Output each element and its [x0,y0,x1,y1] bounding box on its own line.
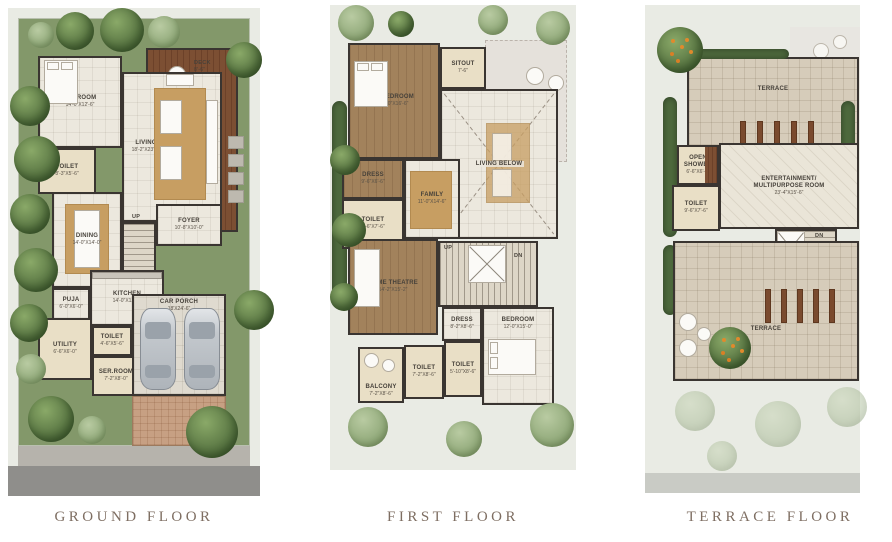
room-entertainment: ENTERTAINMENT/ MULTIPURPOSE ROOM 23'-4"X… [719,143,859,229]
pillow [357,63,369,71]
tree [148,16,180,48]
room-label: ENTERTAINMENT/ MULTIPURPOSE ROOM [739,176,839,190]
tree [14,136,60,182]
room-toilet-tf: TOILET 9'-6"X7'-6" [672,185,720,231]
sofa [160,100,182,134]
room-dress-2: DRESS 8'-2"X8'-6" [442,307,482,341]
room-label: TOILET [413,365,435,372]
tree [28,22,54,48]
tree [10,304,48,342]
sofa [492,133,512,161]
tree [827,387,867,427]
room-label: CAR PORCH [160,299,198,306]
room-label: DINING [76,233,98,240]
tree [707,441,737,471]
car [140,308,176,390]
fruit-tree [657,27,703,73]
room-dims: 10'-8"X10'-0" [175,226,204,232]
stepping-stone [228,190,244,203]
room-label: UTILITY [53,342,77,349]
tree [338,5,374,41]
room-label: SER.ROOM [99,369,133,376]
tree [100,8,144,52]
room-label: TOILET [452,362,474,369]
room-dims: 14'-0"X14'-0" [73,241,102,247]
tree [330,145,360,175]
pillow [371,63,383,71]
stepping-stone [228,136,244,149]
room-toilet-gf-2: TOILET 4'-6"X5'-6" [92,326,132,356]
road-ghost [645,473,860,493]
ground-floor-title: GROUND FLOOR [8,509,260,526]
room-label: FOYER [178,218,200,225]
tree [78,416,106,444]
room-toilet-ff-3: TOILET 5'-10"X8'-6" [444,341,482,397]
tree [10,86,50,126]
stairs-dn-label: DN [815,233,824,239]
room-dims: 4'-6"X5'-6" [100,342,123,348]
hedge [689,49,789,59]
stepping-stone [228,154,244,167]
room-label: TOILET [101,334,123,341]
deck-chair-ghost [833,35,847,49]
room-dims: 5'-10"X8'-6" [450,370,476,376]
stair-void-cross [469,246,505,282]
lounge-table [697,327,711,341]
staircase-gf [122,222,156,274]
room-dims: 7'-6" [458,69,468,75]
stair-void [468,245,506,283]
deck-dims: 8'-6" [194,67,205,73]
room-dims: 12'-0"X15'-0" [504,325,533,331]
room-label: BALCONY [365,384,396,391]
room-dims: 7'-2"X8'-6" [369,392,392,398]
room-label: DRESS [362,172,384,179]
sofa-seat [206,100,218,184]
deck-label: DECK [194,60,211,66]
deck-chair [526,67,544,85]
first-floor-title: FIRST FLOOR [330,509,576,526]
pergola-beam [781,289,787,323]
terrace-label: TERRACE [751,326,781,333]
pillow [490,357,498,369]
room-label: SITOUT [451,61,474,68]
living-below-label: LIVING BELOW [474,161,524,168]
terrace-top: TERRACE [687,57,859,147]
room-dims: 11'-0"X14'-6" [418,200,446,206]
room-puja: PUJA 6'-0"X6'-0" [52,288,90,320]
room-dims: 6'-6"X6'-0" [53,350,76,356]
pergola-beam [829,289,835,323]
room-dims: 7'-2"X8'-0" [104,377,127,383]
room-dims: 14'-0"X12'-6" [66,103,95,109]
tree [536,11,570,45]
pergola-beam [813,289,819,323]
room-label: TOILET [56,164,78,171]
tree [388,11,414,37]
pergola-beam [765,289,771,323]
tree [755,401,801,447]
room-dims: 6'-0"X6'-0" [59,305,82,311]
room-dims: 9'-6"X7'-6" [684,209,707,215]
sofa-seat [166,74,194,86]
terrace-floor-title: TERRACE FLOOR [660,509,880,526]
kitchen-counter [92,272,162,279]
tree [675,391,715,431]
car [184,308,220,390]
tree [446,421,482,457]
terrace-floor-plan: TERRACE OPEN SHOWER 6'-6"X6'-6" TOILET 9… [645,5,860,493]
road [8,466,260,496]
pergola-beam [797,289,803,323]
room-label: PUJA [63,297,80,304]
room-label: DRESS [451,317,473,324]
ground-floor-plan: DECK 8'-6" BEDROOM 14'-0"X12'-6" TOILET … [8,8,260,496]
tree [186,406,238,458]
room-sitout: SITOUT 7'-6" [440,47,486,89]
room-label: TOILET [685,201,707,208]
lounge-chair [679,313,697,331]
stepping-stone [228,172,244,185]
tree [348,407,388,447]
room-label: FAMILY [421,192,444,199]
room-dims: 23'-4"X15'-6" [775,191,804,197]
room-dims: 9'-6"X6'-6" [361,180,384,186]
pillow [61,62,73,70]
sofa [160,146,182,180]
tree [28,396,74,442]
room-foyer: FOYER 10'-8"X10'-0" [156,204,222,246]
room-toilet-ff-2: TOILET 7'-2"X8'-6" [404,345,444,399]
balcony-chair [382,359,395,372]
balcony-chair [364,353,379,368]
lounge-chair [679,339,697,357]
room-label: BEDROOM [502,317,535,324]
fruit-tree [709,327,751,369]
terrace-label: TERRACE [758,86,788,93]
tree [478,5,508,35]
stairs-up-label: UP [132,214,140,220]
room-dims: 7'-2"X8'-6" [412,373,435,379]
first-floor-plan: M.BEDROOM 14'-0"X16'-6" SITOUT 7'-6" LIV… [330,5,576,470]
sofa [492,169,512,197]
tree [14,248,58,292]
tree [56,12,94,50]
room-label: TOILET [362,217,384,224]
room-dims: 8'-3"X5'-6" [55,172,78,178]
tree [234,290,274,330]
tree [332,213,366,247]
shower-deck-strip [705,147,717,183]
pillow [490,342,498,354]
room-dims: 8'-2"X8'-6" [450,325,473,331]
tree [10,194,50,234]
stairs-up-label: UP [444,245,452,251]
tree [16,354,46,384]
stairs-dn-label: DN [514,253,523,259]
pillow [47,62,59,70]
floor-plan-sheet: DECK 8'-6" BEDROOM 14'-0"X12'-6" TOILET … [0,0,892,542]
tree [226,42,262,78]
room-dims: 14'-2"X15'-2" [379,288,408,294]
tree [330,283,358,311]
tree [530,403,574,447]
